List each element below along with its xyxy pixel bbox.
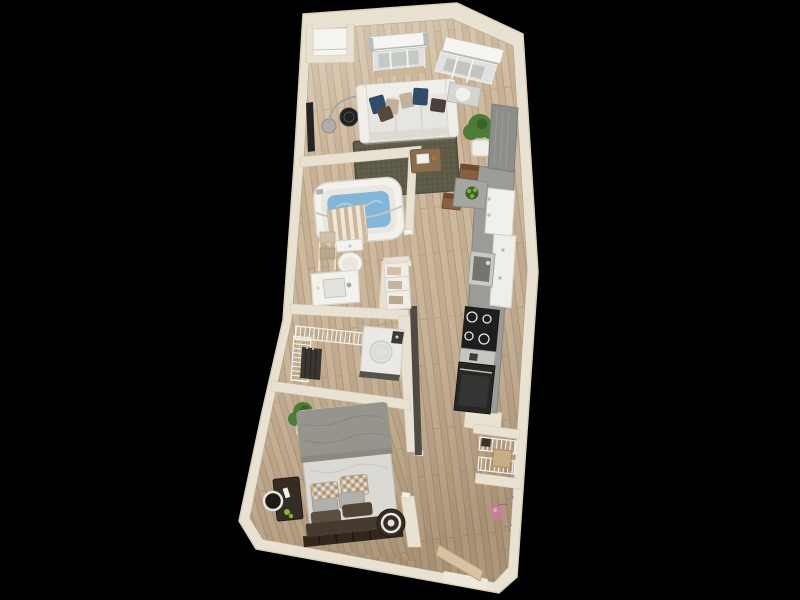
cooktop <box>461 306 500 352</box>
oven <box>454 362 495 414</box>
plant-foliage-dark <box>477 119 488 130</box>
fruit <box>470 194 474 198</box>
decor-lime <box>284 509 290 515</box>
ring-bowl <box>264 492 282 510</box>
tub-faucet <box>316 189 323 195</box>
fridge-handle <box>487 197 491 201</box>
bedroom-door-jamb-bottom <box>402 492 410 498</box>
towel <box>388 281 402 289</box>
towel <box>387 267 401 275</box>
washer-dryer <box>359 326 404 381</box>
vanity-basin <box>323 278 346 298</box>
plant-foliage <box>463 124 479 140</box>
floor-plan-canvas: 3D one-bedroom apartment floor plan Top-… <box>0 0 800 600</box>
cabinet-knob <box>501 248 504 251</box>
towel <box>389 296 403 304</box>
vanity-faucet <box>347 283 352 288</box>
hanging-clothes <box>300 347 322 380</box>
towel <box>320 232 335 243</box>
refrigerator <box>485 188 515 236</box>
cabinet-knob <box>498 276 501 279</box>
round-side-table <box>340 108 358 126</box>
washer-lid <box>370 341 392 363</box>
sink-basin <box>472 256 491 282</box>
bath-door-jamb-top <box>404 229 413 235</box>
pillow-navy-right <box>412 88 428 106</box>
fruit <box>467 189 471 193</box>
vanity <box>311 270 360 306</box>
stored-item <box>481 438 491 447</box>
plant-pot <box>472 140 489 156</box>
bag-highlight <box>493 508 497 512</box>
coffee-table <box>410 148 442 173</box>
oven-door <box>458 374 490 408</box>
tall-cabinet <box>488 104 518 172</box>
towel <box>320 248 335 259</box>
shade-cap-right <box>423 33 429 46</box>
decor-lime <box>289 514 293 518</box>
nightstand-right <box>377 509 405 537</box>
utility-closet-shelf <box>313 28 347 56</box>
control-knob <box>396 336 399 339</box>
book <box>417 154 430 164</box>
fruit <box>473 188 477 192</box>
kitchen-sink <box>468 251 495 287</box>
sink-faucet <box>486 261 490 265</box>
toilet-seat <box>342 257 358 271</box>
linen-shelves <box>384 262 411 310</box>
flush-button <box>349 245 352 248</box>
soap-dish <box>317 287 320 290</box>
hanger-hook <box>306 347 308 349</box>
hanger-hook <box>312 348 314 350</box>
pillow-brown-right <box>430 98 447 113</box>
nightstand-center <box>388 520 395 527</box>
storage-basket <box>492 449 512 468</box>
window-front <box>368 32 429 78</box>
fridge-handle <box>487 213 491 217</box>
sofa <box>356 79 459 146</box>
drain-grate <box>469 353 478 361</box>
floor-plan-image: 3D one-bedroom apartment floor plan Top-… <box>0 0 800 600</box>
